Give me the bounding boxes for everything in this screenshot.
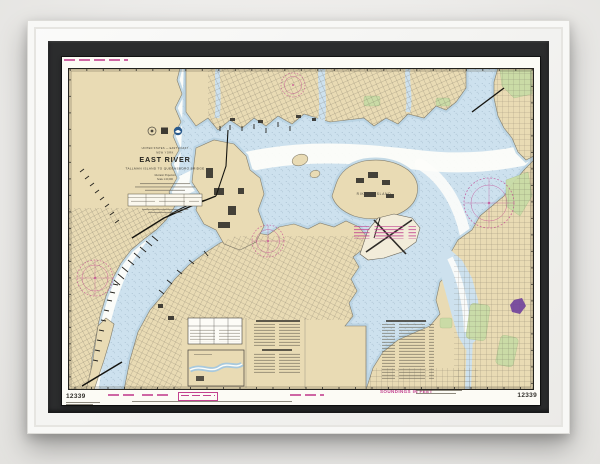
logarithmic-scale-table [128, 194, 202, 206]
picture-frame: RIKERS ISLAND UNITED STATES — EAST COAST… [27, 20, 570, 434]
chart-number-right: 12339 [517, 392, 537, 399]
fine-print-line [66, 404, 93, 405]
scale-line: Scale 1:20,000 [157, 178, 174, 181]
wall-background: RIKERS ISLAND UNITED STATES — EAST COAST… [0, 0, 600, 464]
chart-subtitle: TALLMAN ISLAND TO QUEENSBORO BRIDGE [125, 167, 204, 171]
rikers-island-label: RIKERS ISLAND [357, 192, 392, 196]
inset-map [188, 350, 244, 386]
nautical-chart-map: RIKERS ISLAND UNITED STATES — EAST COAST… [68, 68, 534, 390]
map-svg: RIKERS ISLAND UNITED STATES — EAST COAST… [68, 68, 534, 390]
chart-number-left: 12339 [66, 393, 86, 400]
edition-note [108, 394, 136, 396]
correction-note [290, 394, 324, 396]
magenta-anchorage-note [354, 226, 416, 239]
notes-column-right [382, 320, 434, 380]
frame-mat: RIKERS ISLAND UNITED STATES — EAST COAST… [48, 41, 549, 413]
projection-line: Mercator Projection [155, 174, 176, 177]
chart-paper: RIKERS ISLAND UNITED STATES — EAST COAST… [62, 57, 540, 405]
title-region-line: UNITED STATES — EAST COAST [142, 147, 189, 150]
edition-note [142, 394, 172, 396]
caption-note-line [132, 401, 292, 402]
flag-seal-icon [161, 128, 168, 135]
edition-note-top [64, 59, 128, 61]
fine-print-line [66, 402, 100, 403]
fine-print-line [416, 390, 462, 391]
fine-print-line [416, 393, 456, 394]
chart-title: EAST RIVER [139, 155, 190, 164]
tidal-table [188, 318, 242, 344]
